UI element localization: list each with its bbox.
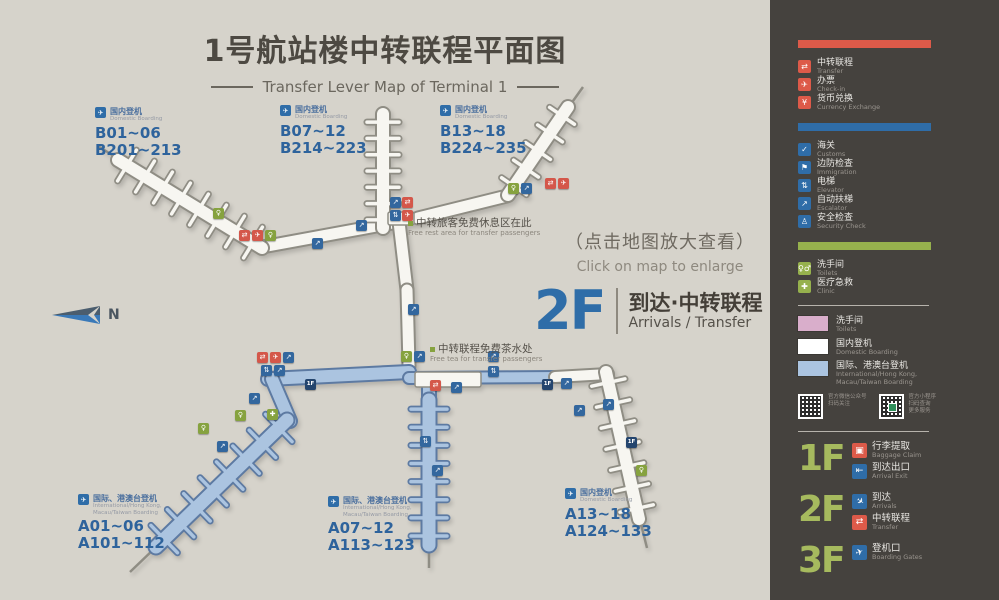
floor1-marker-icon: 1F: [542, 379, 553, 390]
gate-tag-zh: 国内登机: [580, 488, 632, 497]
gate-tag-text: 国内登机Domestic Boarding: [295, 105, 347, 121]
title-dash-right: [517, 86, 559, 88]
gate-tag-en: Domestic Boarding: [110, 116, 162, 123]
gate-numbers: A07~12A113~123: [328, 520, 429, 554]
legend-item-zh: 海关: [817, 141, 845, 151]
floor-entry: ⇤到达出口Arrival Exit: [852, 463, 921, 481]
page: 1号航站楼中转联程平面图 Transfer Lever Map of Termi…: [0, 0, 999, 600]
legend-item-label: 中转联程Transfer: [817, 58, 853, 75]
floor-number: 2F: [798, 493, 844, 527]
escalator-marker-icon: ↗: [574, 405, 585, 416]
gate-tag-en: Domestic Boarding: [580, 497, 632, 504]
baggage-claim-icon: ▣: [852, 443, 867, 458]
escalator-marker-icon: ↗: [312, 238, 323, 249]
gate-group-a13: ✈国内登机Domestic BoardingA13~18A124~133: [565, 488, 652, 540]
click-hint: （点击地图放大查看） Click on map to enlarge: [555, 228, 765, 275]
click-hint-en: Click on map to enlarge: [555, 259, 765, 275]
legend-accent-bar-blue-group: [798, 123, 931, 131]
legend-item: ✈办票Check-in: [798, 75, 973, 93]
qr-codes: 官方微信公众号扫码关注官方小程序扫码查询更多服务: [798, 394, 973, 419]
floor-entries: ▣行李提取Baggage Claim⇤到达出口Arrival Exit: [852, 442, 921, 483]
gate-group-a01: ✈国际、港澳台登机International/Hong Kong, Macau/…: [78, 494, 179, 552]
escalator-marker-icon: ↗: [274, 365, 285, 376]
floor-entry: ✈登机口Boarding Gates: [852, 544, 922, 562]
legend-item-label: 安全检查Security Check: [817, 213, 866, 230]
floor-entry-label: 中转联程Transfer: [872, 514, 910, 532]
plane-icon: ✈: [328, 496, 339, 507]
gate-numbers: A13~18A124~133: [565, 506, 652, 540]
transfer-marker-icon: ⇄: [257, 352, 268, 363]
legend-item-en: Security Check: [817, 223, 866, 230]
legend-item-zh: 自动扶梯: [817, 195, 853, 205]
floor-entry-zh: 中转联程: [872, 514, 910, 524]
checkin-marker-icon: ✈: [252, 230, 263, 241]
area-swatch: 国际、港澳台登机International/Hong Kong, Macau/T…: [798, 361, 973, 386]
area-swatch: 洗手间Toilets: [798, 316, 973, 334]
floor1-marker-icon: 1F: [305, 379, 316, 390]
floor-nav-2f[interactable]: 2F✈到达Arrivals⇄中转联程Transfer: [798, 493, 973, 534]
legend-item: ✓海关Customs: [798, 140, 973, 158]
elevator-marker-icon: ⇅: [420, 436, 431, 447]
toilet-marker-icon: ♀: [235, 410, 246, 421]
transfer-marker-icon: ⇄: [430, 380, 441, 391]
qr-caption: 官方微信公众号扫码关注: [828, 394, 867, 408]
gate-tag-zh: 国内登机: [455, 105, 507, 114]
floor-entries: ✈到达Arrivals⇄中转联程Transfer: [852, 493, 910, 534]
legend-item-zh: 医疗急救: [817, 278, 853, 288]
escalator-marker-icon: ↗: [283, 352, 294, 363]
escalator-icon: ↗: [798, 197, 811, 210]
title-en: Transfer Lever Map of Terminal 1: [0, 78, 770, 96]
green-dot-icon: [408, 221, 413, 226]
legend-item-zh: 办票: [817, 76, 845, 86]
legend-item-zh: 货币兑换: [817, 94, 880, 104]
floor-number: 1F: [798, 442, 844, 476]
floor-entry-label: 登机口Boarding Gates: [872, 544, 922, 562]
checkin-marker-icon: ✈: [558, 178, 569, 189]
transfer-icon: ⇄: [852, 515, 867, 530]
area-color-swatches: 洗手间Toilets国内登机Domestic Boarding国际、港澳台登机I…: [798, 316, 973, 386]
gate-numbers: B01~06B201~213: [95, 125, 182, 159]
legend-item-zh: 边防检查: [817, 159, 857, 169]
floor-entries: ✈登机口Boarding Gates: [852, 544, 922, 565]
arrival-exit-icon: ⇤: [852, 464, 867, 479]
floor-entry-label: 到达出口Arrival Exit: [872, 463, 910, 481]
escalator-marker-icon: ↗: [521, 183, 532, 194]
gate-area-tag: ✈国内登机Domestic Boarding: [440, 105, 527, 121]
swatch-color-box: [798, 316, 828, 331]
floor-nav-1f[interactable]: 1F▣行李提取Baggage Claim⇤到达出口Arrival Exit: [798, 442, 973, 483]
escalator-marker-icon: ↗: [432, 465, 443, 476]
gate-tag-text: 国际、港澳台登机International/Hong Kong, Macau/T…: [93, 494, 179, 516]
security-check-icon: ♙: [798, 215, 811, 228]
legend-item-label: 自动扶梯Escalator: [817, 195, 853, 212]
floor-entry-en: Arrival Exit: [872, 473, 910, 481]
legend-item: ¥货币兑换Currency Exchange: [798, 93, 973, 111]
swatch-en: Domestic Boarding: [836, 349, 898, 357]
gate-tag-text: 国内登机Domestic Boarding: [580, 488, 632, 504]
transfer-icon: ⇄: [798, 60, 811, 73]
escalator-marker-icon: ↗: [249, 393, 260, 404]
annotation-zh: 中转旅客免费休息区在此: [408, 218, 540, 229]
green-dot-icon: [430, 347, 435, 352]
gate-numbers: B07~12B214~223: [280, 123, 367, 157]
floor-entry-en: Arrivals: [872, 503, 897, 511]
legend-item-label: 边防检查Immigration: [817, 159, 857, 176]
legend-item-en: Customs: [817, 151, 845, 158]
area-swatch: 国内登机Domestic Boarding: [798, 339, 973, 357]
legend-item: ♀♂洗手间Toilets: [798, 259, 973, 277]
floor-entry: ✈到达Arrivals: [852, 493, 910, 511]
map-annotation-1: 中转旅客免费休息区在此Free rest area for transfer p…: [408, 218, 540, 237]
gate-area-tag: ✈国内登机Domestic Boarding: [280, 105, 367, 121]
clinic-marker-icon: ✚: [267, 409, 278, 420]
swatch-label: 国内登机Domestic Boarding: [836, 339, 898, 357]
legend-item: ♙安全检查Security Check: [798, 212, 973, 230]
qr-code-image: [879, 394, 904, 419]
floor-entry: ⇄中转联程Transfer: [852, 514, 910, 532]
arrivals-icon: ✈: [852, 494, 867, 509]
compass-label: N: [108, 307, 120, 323]
legend-item-label: 医疗急救Clinic: [817, 278, 853, 295]
title-zh: 1号航站楼中转联程平面图: [0, 26, 770, 70]
qr-code-image: [798, 394, 823, 419]
escalator-marker-icon: ↗: [356, 220, 367, 231]
gate-tag-en: International/Hong Kong, Macau/Taiwan Bo…: [343, 505, 429, 518]
swatch-en: Toilets: [836, 326, 863, 334]
legend-item-en: Escalator: [817, 205, 853, 212]
elevator-icon: ⇅: [798, 179, 811, 192]
swatch-en: International/Hong Kong, Macau/Taiwan Bo…: [836, 371, 956, 386]
gate-tag-zh: 国内登机: [110, 107, 162, 116]
toilet-marker-icon: ♀: [401, 351, 412, 362]
plane-icon: ✈: [95, 107, 106, 118]
customs-icon: ✓: [798, 143, 811, 156]
legend-item-en: Clinic: [817, 288, 853, 295]
gate-numbers: B13~18B224~235: [440, 123, 527, 157]
floor-badge-zh: 到达·中转联程: [628, 291, 762, 315]
legend-groups: ⇄中转联程Transfer✈办票Check-in¥货币兑换Currency Ex…: [798, 40, 973, 295]
legend-item-zh: 电梯: [817, 177, 844, 187]
terminal-map[interactable]: 1号航站楼中转联程平面图 Transfer Lever Map of Termi…: [0, 0, 770, 600]
legend-item-label: 办票Check-in: [817, 76, 845, 93]
plane-icon: ✈: [565, 488, 576, 499]
legend-item-en: Immigration: [817, 169, 857, 176]
floor-entry-zh: 到达出口: [872, 463, 910, 473]
page-title: 1号航站楼中转联程平面图 Transfer Lever Map of Termi…: [0, 26, 770, 96]
annotation-zh: 中转联程免费茶水处: [430, 344, 542, 355]
gate-tag-en: International/Hong Kong, Macau/Taiwan Bo…: [93, 503, 179, 516]
floor-navigation: 1F▣行李提取Baggage Claim⇤到达出口Arrival Exit2F✈…: [798, 442, 973, 578]
floor-badge-divider: [616, 288, 618, 334]
elevator-marker-icon: ⇅: [390, 210, 401, 221]
escalator-marker-icon: ↗: [561, 378, 572, 389]
compass-arrow-icon: [50, 302, 102, 328]
toilet-marker-icon: ♀: [636, 465, 647, 476]
sidebar-divider-1: [798, 305, 929, 306]
floor-entry-label: 到达Arrivals: [872, 493, 897, 511]
floor-badge-number: 2F: [534, 284, 604, 338]
gate-group-b13: ✈国内登机Domestic BoardingB13~18B224~235: [440, 105, 527, 157]
gate-area-tag: ✈国际、港澳台登机International/Hong Kong, Macau/…: [328, 496, 429, 518]
transfer-marker-icon: ⇄: [402, 197, 413, 208]
plane-icon: ✈: [440, 105, 451, 116]
sidebar-divider-2: [798, 431, 929, 432]
gate-tag-zh: 国内登机: [295, 105, 347, 114]
toilet-icon: ♀♂: [798, 262, 811, 275]
floor1-marker-icon: 1F: [626, 437, 637, 448]
escalator-marker-icon: ↗: [603, 399, 614, 410]
swatch-zh: 国内登机: [836, 339, 898, 349]
gate-numbers: A01~06A101~112: [78, 518, 179, 552]
toilet-marker-icon: ♀: [213, 208, 224, 219]
gate-group-b07: ✈国内登机Domestic BoardingB07~12B214~223: [280, 105, 367, 157]
swatch-color-box: [798, 361, 828, 376]
gate-tag-zh: 国际、港澳台登机: [343, 496, 429, 505]
escalator-marker-icon: ↗: [451, 382, 462, 393]
floor-entry-en: Baggage Claim: [872, 452, 921, 460]
legend-item-label: 电梯Elevator: [817, 177, 844, 194]
legend-item-zh: 安全检查: [817, 213, 866, 223]
legend-item-zh: 洗手间: [817, 260, 844, 270]
currency-exchange-icon: ¥: [798, 96, 811, 109]
swatch-color-box: [798, 339, 828, 354]
gate-tag-en: Domestic Boarding: [455, 114, 507, 121]
legend-item-label: 海关Customs: [817, 141, 845, 158]
plane-icon: ✈: [280, 105, 291, 116]
qr-caption: 官方小程序扫码查询更多服务: [909, 394, 937, 415]
gate-area-tag: ✈国内登机Domestic Boarding: [565, 488, 652, 504]
legend-item: ✚医疗急救Clinic: [798, 277, 973, 295]
legend-item-en: Elevator: [817, 187, 844, 194]
elevator-marker-icon: ⇅: [261, 365, 272, 376]
boarding-gates-icon: ✈: [852, 545, 867, 560]
gate-area-tag: ✈国内登机Domestic Boarding: [95, 107, 182, 123]
legend-item-en: Check-in: [817, 86, 845, 93]
escalator-marker-icon: ↗: [390, 197, 401, 208]
click-hint-zh: （点击地图放大查看）: [555, 228, 765, 254]
legend-item: ⚑边防检查Immigration: [798, 158, 973, 176]
floor-entry: ▣行李提取Baggage Claim: [852, 442, 921, 460]
gate-tag-zh: 国际、港澳台登机: [93, 494, 179, 503]
toilet-marker-icon: ♀: [265, 230, 276, 241]
legend-item-en: Currency Exchange: [817, 104, 880, 111]
gate-area-tag: ✈国际、港澳台登机International/Hong Kong, Macau/…: [78, 494, 179, 516]
floor-entry-en: Transfer: [872, 524, 910, 532]
toilet-marker-icon: ♀: [198, 423, 209, 434]
legend-sidebar: ⇄中转联程Transfer✈办票Check-in¥货币兑换Currency Ex…: [770, 0, 999, 600]
legend-accent-bar-green-group: [798, 242, 931, 250]
escalator-marker-icon: ↗: [217, 441, 228, 452]
qr-center-dot: [888, 403, 897, 412]
toilet-marker-icon: ♀: [508, 183, 519, 194]
floor-entry-label: 行李提取Baggage Claim: [872, 442, 921, 460]
title-en-text: Transfer Lever Map of Terminal 1: [263, 78, 508, 96]
gate-group-a07: ✈国际、港澳台登机International/Hong Kong, Macau/…: [328, 496, 429, 554]
escalator-marker-icon: ↗: [408, 304, 419, 315]
immigration-icon: ⚑: [798, 161, 811, 174]
swatch-label: 国际、港澳台登机International/Hong Kong, Macau/T…: [836, 361, 956, 386]
legend-item: ↗自动扶梯Escalator: [798, 194, 973, 212]
floor-number: 3F: [798, 544, 844, 578]
gate-tag-text: 国内登机Domestic Boarding: [455, 105, 507, 121]
legend-item-label: 洗手间Toilets: [817, 260, 844, 277]
legend-accent-bar-red-group: [798, 40, 931, 48]
map-annotation-2: 中转联程免费茶水处Free tea for transfer passenger…: [430, 344, 542, 363]
checkin-marker-icon: ✈: [270, 352, 281, 363]
floor-nav-3f[interactable]: 3F✈登机口Boarding Gates: [798, 544, 973, 578]
legend-item-zh: 中转联程: [817, 58, 853, 68]
gate-group-b01: ✈国内登机Domestic BoardingB01~06B201~213: [95, 107, 182, 159]
title-dash-left: [211, 86, 253, 88]
checkin-icon: ✈: [798, 78, 811, 91]
legend-item: ⇄中转联程Transfer: [798, 57, 973, 75]
gate-tag-text: 国内登机Domestic Boarding: [110, 107, 162, 123]
clinic-icon: ✚: [798, 280, 811, 293]
compass: N: [50, 302, 120, 328]
swatch-label: 洗手间Toilets: [836, 316, 863, 334]
qr-code: 官方微信公众号扫码关注: [798, 394, 867, 419]
floor-badge-en: Arrivals / Transfer: [628, 315, 762, 332]
plane-icon: ✈: [78, 494, 89, 505]
legend-item-en: Transfer: [817, 68, 853, 75]
escalator-marker-icon: ↗: [414, 351, 425, 362]
annotation-en: Free tea for transfer passengers: [430, 355, 542, 363]
legend-item: ⇅电梯Elevator: [798, 176, 973, 194]
annotation-en: Free rest area for transfer passengers: [408, 229, 540, 237]
floor-entry-en: Boarding Gates: [872, 554, 922, 562]
gate-tag-en: Domestic Boarding: [295, 114, 347, 121]
elevator-marker-icon: ⇅: [488, 366, 499, 377]
legend-item-label: 货币兑换Currency Exchange: [817, 94, 880, 111]
qr-code: 官方小程序扫码查询更多服务: [879, 394, 937, 419]
gate-tag-text: 国际、港澳台登机International/Hong Kong, Macau/T…: [343, 496, 429, 518]
transfer-marker-icon: ⇄: [239, 230, 250, 241]
legend-item-en: Toilets: [817, 270, 844, 277]
transfer-marker-icon: ⇄: [545, 178, 556, 189]
current-floor-badge: 2F 到达·中转联程 Arrivals / Transfer: [534, 284, 762, 338]
